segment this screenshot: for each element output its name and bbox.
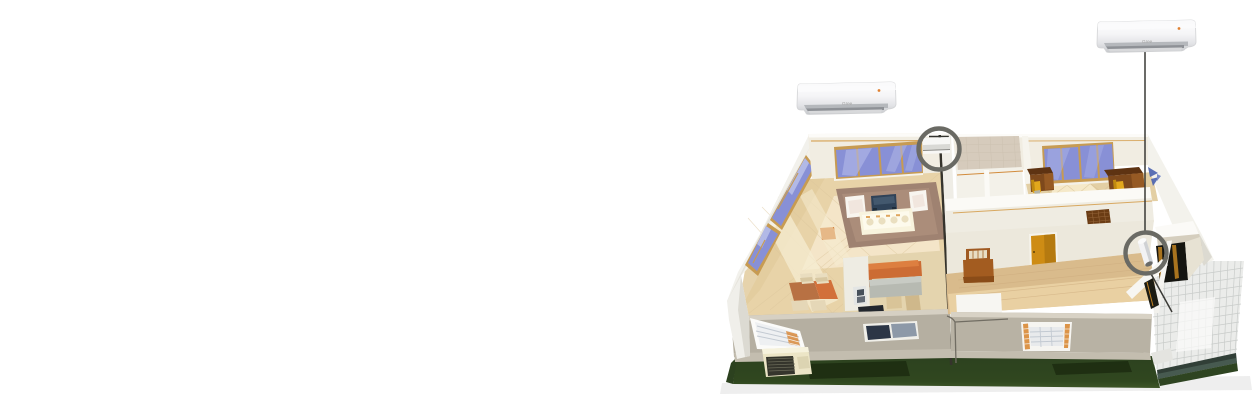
svg-text:Gree: Gree	[842, 101, 853, 106]
svg-text:Gree: Gree	[1142, 39, 1153, 44]
